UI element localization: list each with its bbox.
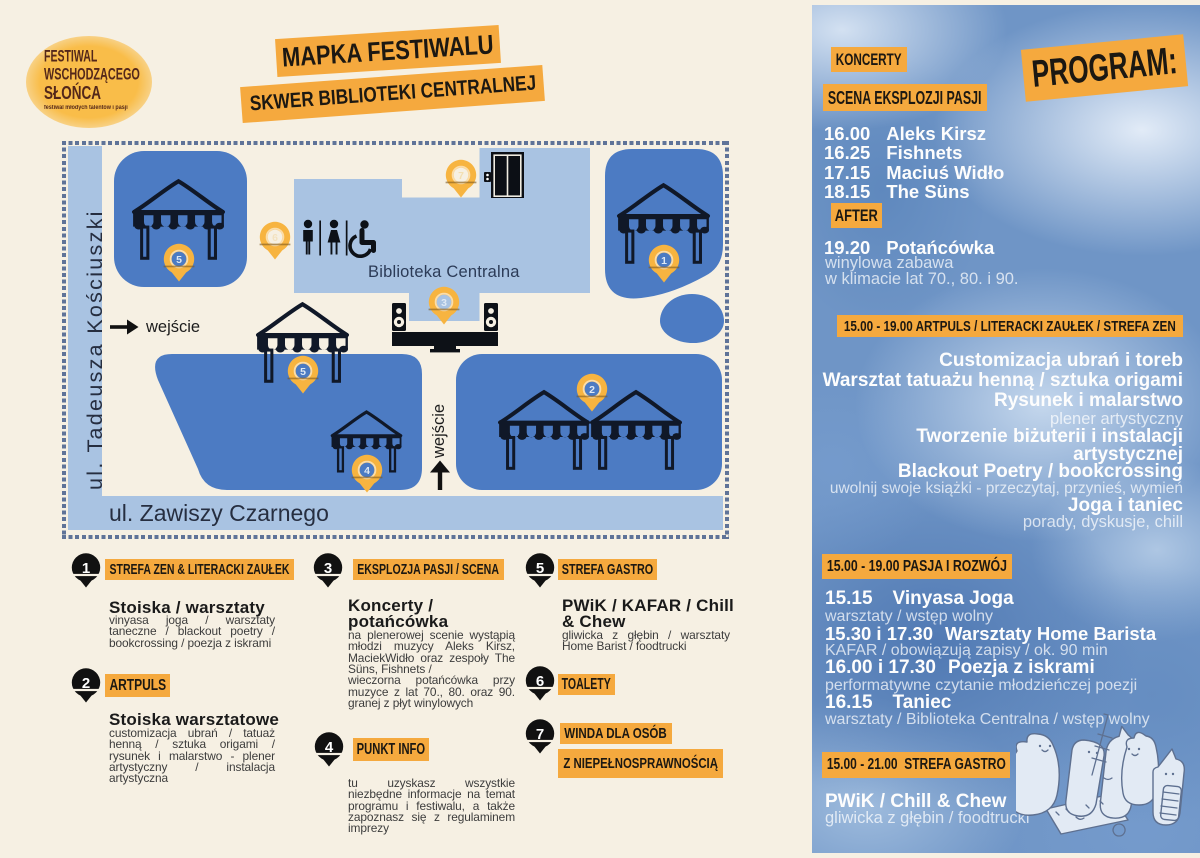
svg-text:5: 5: [300, 366, 306, 378]
svg-text:3: 3: [441, 297, 447, 309]
svg-text:6: 6: [272, 232, 278, 244]
svg-text:2: 2: [81, 675, 89, 692]
svg-text:2: 2: [589, 384, 595, 396]
svg-text:4: 4: [325, 739, 334, 756]
svg-text:4: 4: [364, 465, 370, 477]
svg-text:1: 1: [81, 560, 89, 577]
svg-text:1: 1: [661, 255, 667, 267]
svg-text:5: 5: [535, 560, 543, 577]
svg-text:6: 6: [535, 673, 543, 690]
svg-text:5: 5: [176, 254, 182, 266]
svg-text:7: 7: [458, 170, 464, 182]
svg-text:7: 7: [536, 726, 544, 743]
svg-text:3: 3: [324, 560, 332, 577]
